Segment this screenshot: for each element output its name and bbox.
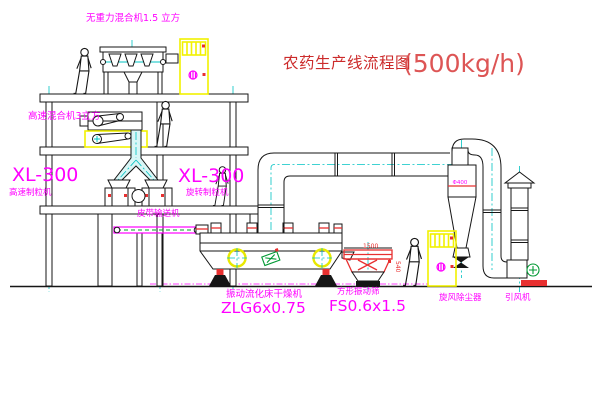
vibrating-screen: 1500 540 <box>344 243 401 286</box>
label-left-granulator-model: XL-300 <box>12 164 78 186</box>
label-right-granulator-name: 旋转制粒机 <box>186 187 229 198</box>
dryer-feet <box>209 269 337 286</box>
title-text: 农药生产线流程图 <box>283 54 411 72</box>
exhaust-duct <box>258 153 450 233</box>
label-second-floor-mixer: 高速混合机3立方 <box>28 110 101 122</box>
granulator-left <box>105 180 135 206</box>
induced-draft-fan <box>507 260 547 286</box>
label-belt-conveyor: 皮带输送机 <box>137 208 180 219</box>
belt-conveyor <box>114 227 200 286</box>
granulator-drum <box>132 190 145 203</box>
drawing-title: 农药生产线流程图 (500kg/h) <box>283 49 525 78</box>
fluid-bed-dryer <box>196 223 354 286</box>
label-top-mixer: 无重力混合机1.5 立方 <box>86 12 180 24</box>
control-cabinet-ground <box>428 231 456 286</box>
cyclone-separator: Φ400 <box>448 148 476 268</box>
label-cyclone: 旋风除尘器 <box>439 292 482 303</box>
worker-roof <box>74 48 92 93</box>
label-fan: 引风机 <box>505 292 531 303</box>
control-cabinet-roof <box>180 39 208 94</box>
stack-cap-icon <box>505 172 534 183</box>
flow-diagram-page: Φ400 1500 540 <box>0 0 600 403</box>
exhaust-stack <box>505 172 534 260</box>
drawing-canvas: Φ400 1500 540 <box>0 0 600 403</box>
label-right-granulator-model: XL-300 <box>178 165 244 187</box>
worker-ground <box>403 238 421 285</box>
granulator-right <box>142 180 172 206</box>
gravity-free-mixer <box>100 47 178 94</box>
label-left-granulator-name: 高速制粒机 <box>9 187 52 198</box>
label-screen-model: FS0.6x1.5 <box>329 297 406 315</box>
screen-height-dimension: 540 <box>394 261 401 273</box>
screen-length-dimension: 1500 <box>363 243 378 250</box>
label-screen-name: 方形振动筛 <box>337 286 380 297</box>
label-dryer-model: ZLG6x0.75 <box>221 299 306 317</box>
cyclone-size-label: Φ400 <box>453 180 468 186</box>
title-capacity: (500kg/h) <box>403 49 525 78</box>
